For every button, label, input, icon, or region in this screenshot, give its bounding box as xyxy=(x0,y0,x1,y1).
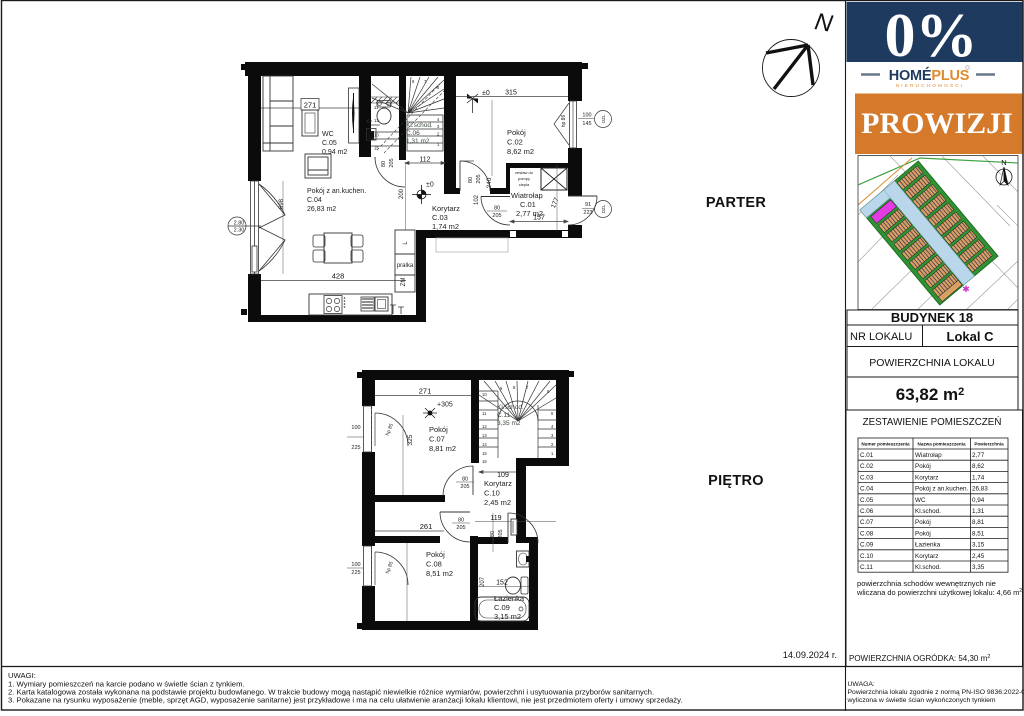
svg-text:Lokal C: Lokal C xyxy=(947,329,995,344)
svg-text:C.03: C.03 xyxy=(860,474,874,481)
svg-text:315: 315 xyxy=(505,90,517,97)
svg-text:205: 205 xyxy=(456,525,465,531)
svg-text:wyliczona w świetle ścian wyko: wyliczona w świetle ścian wykończonych t… xyxy=(847,697,996,704)
svg-text:C.01: C.01 xyxy=(520,200,536,209)
svg-text:11: 11 xyxy=(482,411,487,416)
svg-text:3,15 m2: 3,15 m2 xyxy=(494,612,521,621)
svg-text:C.06: C.06 xyxy=(860,508,874,515)
svg-text:205: 205 xyxy=(476,174,482,183)
svg-text:26,83: 26,83 xyxy=(972,486,988,493)
svg-text:C.09: C.09 xyxy=(494,603,510,612)
svg-text:ZESTAWIENIE POMIESZCZEŃ: ZESTAWIENIE POMIESZCZEŃ xyxy=(863,417,1002,428)
svg-text:80: 80 xyxy=(458,518,464,524)
svg-text:Powierzchnia lokalu zgodnie z: Powierzchnia lokalu zgodnie z normą PN-I… xyxy=(848,689,1024,696)
svg-text:Kl.schod.: Kl.schod. xyxy=(915,564,941,571)
svg-text:13: 13 xyxy=(482,433,487,438)
svg-text:112: 112 xyxy=(419,157,430,164)
svg-text:14: 14 xyxy=(482,442,487,447)
svg-text:PROWIZJI: PROWIZJI xyxy=(861,107,1013,140)
svg-text:N: N xyxy=(1001,158,1006,167)
svg-text:205: 205 xyxy=(460,484,469,490)
svg-text:80: 80 xyxy=(494,206,500,212)
svg-text:271: 271 xyxy=(419,387,432,396)
svg-text:Kl.schod.: Kl.schod. xyxy=(915,508,941,515)
svg-text:12: 12 xyxy=(482,424,487,429)
svg-text:80: 80 xyxy=(468,177,474,183)
svg-text:Korytarz: Korytarz xyxy=(432,204,460,213)
svg-text:13: 13 xyxy=(374,133,379,138)
svg-text:C.07: C.07 xyxy=(860,519,874,526)
svg-text:Pokój: Pokój xyxy=(915,519,931,526)
svg-text:Pokój: Pokój xyxy=(915,463,931,470)
svg-text:UWAGA:: UWAGA: xyxy=(848,681,875,688)
svg-text:26,83 m2: 26,83 m2 xyxy=(307,206,336,213)
svg-text:Pokój z an.kuchen.: Pokój z an.kuchen. xyxy=(307,188,366,195)
svg-text:1,74: 1,74 xyxy=(972,474,985,481)
svg-text:WC: WC xyxy=(915,497,926,504)
svg-text:80: 80 xyxy=(381,161,387,167)
svg-text:205: 205 xyxy=(492,213,501,219)
svg-text:100: 100 xyxy=(351,562,360,568)
svg-text:16: 16 xyxy=(482,459,487,464)
svg-text:ciepła: ciepła xyxy=(519,182,530,187)
svg-text:Kl.schod.: Kl.schod. xyxy=(406,122,433,129)
svg-text:Pokój: Pokój xyxy=(429,425,448,434)
svg-text:261: 261 xyxy=(420,522,433,531)
svg-text:8,62: 8,62 xyxy=(972,463,985,470)
svg-text:1,31: 1,31 xyxy=(972,508,985,515)
svg-text:3,35: 3,35 xyxy=(972,564,985,571)
svg-text:8,51 m2: 8,51 m2 xyxy=(426,569,453,578)
svg-text:C.11: C.11 xyxy=(860,564,873,571)
svg-text:POWIERZCHNIA OGRÓDKA: 54,30 m2: POWIERZCHNIA OGRÓDKA: 54,30 m2 xyxy=(849,654,990,663)
svg-text:pompy: pompy xyxy=(518,176,530,181)
svg-text:223: 223 xyxy=(583,210,592,216)
svg-text:205: 205 xyxy=(389,158,395,167)
svg-text:Korytarz: Korytarz xyxy=(915,474,938,481)
svg-text:C.11: C.11 xyxy=(497,412,511,419)
svg-text:428: 428 xyxy=(332,272,345,281)
svg-text:PARTER: PARTER xyxy=(706,195,767,211)
svg-text:2,45 m2: 2,45 m2 xyxy=(484,498,511,507)
svg-text:200: 200 xyxy=(399,188,405,199)
svg-text:OZL: OZL xyxy=(601,114,606,123)
svg-text:10: 10 xyxy=(482,392,487,397)
svg-text:2.30: 2.30 xyxy=(234,228,245,234)
svg-text:8,51: 8,51 xyxy=(972,530,985,537)
svg-text:±0: ±0 xyxy=(426,182,434,189)
svg-text:DZL: DZL xyxy=(601,204,606,213)
svg-text:Pokój: Pokój xyxy=(426,550,445,559)
svg-text:Kl.schod.: Kl.schod. xyxy=(497,404,524,411)
svg-text:145: 145 xyxy=(582,121,591,127)
svg-text:Pokój: Pokój xyxy=(507,128,526,137)
svg-text:157: 157 xyxy=(533,215,545,222)
svg-text:ZM: ZM xyxy=(401,278,407,287)
svg-text:C.03: C.03 xyxy=(432,213,448,222)
svg-text:POWIERZCHNIA LOKALU: POWIERZCHNIA LOKALU xyxy=(869,357,994,369)
svg-text:C.04: C.04 xyxy=(307,197,322,204)
svg-text:109: 109 xyxy=(497,472,509,479)
svg-text:Nazwa pomieszczenia: Nazwa pomieszczenia xyxy=(918,442,966,447)
svg-text:1,31 m2: 1,31 m2 xyxy=(406,138,430,145)
svg-text:8,81: 8,81 xyxy=(972,519,985,526)
svg-text:12: 12 xyxy=(374,118,379,123)
svg-text:205: 205 xyxy=(498,529,504,538)
svg-text:NR LOKALU: NR LOKALU xyxy=(850,331,912,343)
svg-text:3,35 m2: 3,35 m2 xyxy=(497,420,521,427)
svg-text:BUDYNEK 18: BUDYNEK 18 xyxy=(891,310,973,325)
svg-text:207: 207 xyxy=(480,576,486,587)
svg-text:zestaw do: zestaw do xyxy=(515,170,534,175)
svg-text:1,74 m2: 1,74 m2 xyxy=(432,222,459,231)
svg-text:Łazienka: Łazienka xyxy=(915,542,941,549)
svg-text:15: 15 xyxy=(482,451,487,456)
svg-text:C.08: C.08 xyxy=(426,560,442,569)
svg-text:102: 102 xyxy=(474,194,480,205)
svg-text:91: 91 xyxy=(585,202,591,208)
svg-text:225: 225 xyxy=(351,445,360,451)
svg-text:pralka: pralka xyxy=(397,263,414,269)
svg-text:C.05: C.05 xyxy=(322,140,337,147)
svg-text:Numer pomieszczenia: Numer pomieszczenia xyxy=(861,442,910,447)
svg-text:Pokój: Pokój xyxy=(915,530,931,537)
svg-text:2,77: 2,77 xyxy=(972,452,985,459)
svg-text:C.09: C.09 xyxy=(860,542,874,549)
svg-text:C.08: C.08 xyxy=(860,530,874,537)
svg-text:C.04: C.04 xyxy=(860,486,874,493)
svg-text:HOMÉPLUS: HOMÉPLUS xyxy=(889,67,970,84)
svg-text:698: 698 xyxy=(279,198,285,209)
svg-text:0%: 0% xyxy=(885,2,978,70)
svg-text:Korytarz: Korytarz xyxy=(484,479,512,488)
svg-text:C.10: C.10 xyxy=(860,553,874,560)
svg-text:325: 325 xyxy=(407,434,414,445)
svg-text:0,94 m2: 0,94 m2 xyxy=(322,149,347,156)
svg-text:8,62 m2: 8,62 m2 xyxy=(507,147,534,156)
svg-text:powierzchnia schodów wewnętrzn: powierzchnia schodów wewnętrznych nie xyxy=(857,579,996,588)
svg-text:C.07: C.07 xyxy=(429,435,445,444)
svg-text:8,81 m2: 8,81 m2 xyxy=(429,444,456,453)
svg-text:2,45: 2,45 xyxy=(972,553,985,560)
svg-text:100: 100 xyxy=(351,425,360,431)
svg-text:WC: WC xyxy=(322,131,334,138)
svg-text:C.02: C.02 xyxy=(860,463,874,470)
svg-text:hp 86: hp 86 xyxy=(561,115,567,128)
svg-text:0,94: 0,94 xyxy=(972,497,985,504)
svg-text:100: 100 xyxy=(582,113,591,119)
svg-text:3,15: 3,15 xyxy=(972,542,985,549)
svg-text:✱: ✱ xyxy=(962,284,970,294)
svg-text:C.05: C.05 xyxy=(860,497,874,504)
svg-text:Wiatrołap: Wiatrołap xyxy=(915,452,942,459)
svg-text:2.80: 2.80 xyxy=(234,221,245,227)
svg-text:119: 119 xyxy=(490,515,501,522)
svg-text:3. Pokazane na rysunku wyposaż: 3. Pokazane na rysunku wyposażenie (mebl… xyxy=(8,696,683,705)
svg-text:C.10: C.10 xyxy=(484,489,500,498)
svg-text:PIĘTRO: PIĘTRO xyxy=(708,473,764,489)
svg-text:225: 225 xyxy=(351,570,360,576)
svg-text:wliczana do powierzchni użytko: wliczana do powierzchni użytkowej lokalu… xyxy=(856,588,1022,597)
svg-text:271: 271 xyxy=(304,101,317,110)
svg-text:Korytarz: Korytarz xyxy=(915,553,938,560)
svg-text:Pokój z an.kuchen.: Pokój z an.kuchen. xyxy=(915,486,968,493)
svg-text:80: 80 xyxy=(462,477,468,483)
svg-text:C.06: C.06 xyxy=(406,130,420,137)
svg-text:Wiatrołap: Wiatrołap xyxy=(511,191,543,200)
svg-text:63,82 m2: 63,82 m2 xyxy=(896,385,965,404)
svg-text:14.09.2024 r.: 14.09.2024 r. xyxy=(783,650,837,660)
svg-text:11: 11 xyxy=(374,105,379,110)
svg-text:C.01: C.01 xyxy=(860,452,874,459)
svg-text:+305: +305 xyxy=(437,402,453,409)
svg-text:Powierzchnia: Powierzchnia xyxy=(974,442,1004,447)
svg-text:Łazienka: Łazienka xyxy=(494,594,525,603)
svg-text:±0: ±0 xyxy=(482,90,490,97)
svg-text:C.02: C.02 xyxy=(507,138,523,147)
